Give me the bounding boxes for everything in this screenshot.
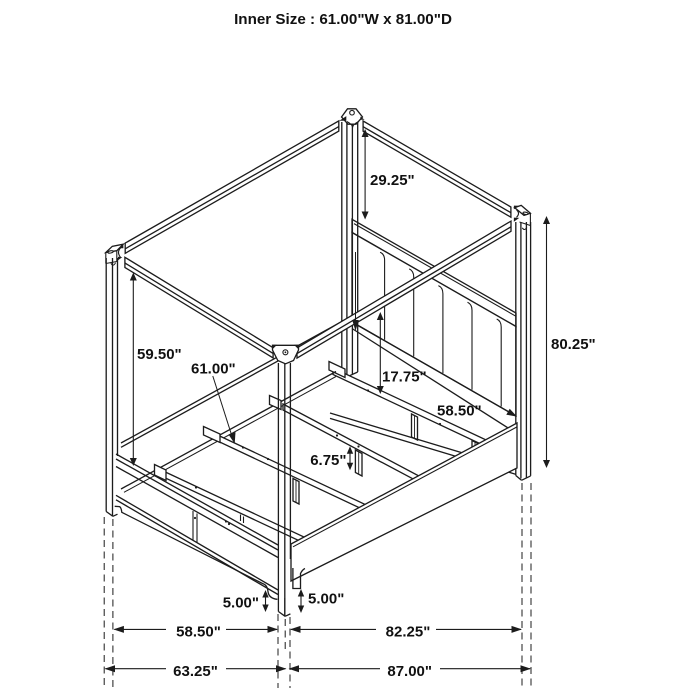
svg-text:5.00": 5.00" bbox=[223, 595, 259, 612]
svg-text:6.75": 6.75" bbox=[310, 452, 346, 469]
svg-text:5.00": 5.00" bbox=[308, 591, 344, 608]
svg-text:87.00": 87.00" bbox=[387, 663, 432, 680]
svg-text:58.50": 58.50" bbox=[176, 624, 221, 641]
svg-text:17.75": 17.75" bbox=[382, 369, 427, 386]
svg-text:Inner Size : 61.00"W x 81.00"D: Inner Size : 61.00"W x 81.00"D bbox=[234, 11, 452, 28]
svg-text:59.50": 59.50" bbox=[137, 346, 182, 363]
svg-text:82.25": 82.25" bbox=[386, 624, 431, 641]
svg-text:61.00": 61.00" bbox=[191, 361, 236, 378]
svg-text:63.25": 63.25" bbox=[173, 663, 218, 680]
svg-text:80.25": 80.25" bbox=[551, 336, 596, 353]
svg-text:29.25": 29.25" bbox=[370, 172, 415, 189]
svg-text:58.50": 58.50" bbox=[437, 403, 482, 420]
